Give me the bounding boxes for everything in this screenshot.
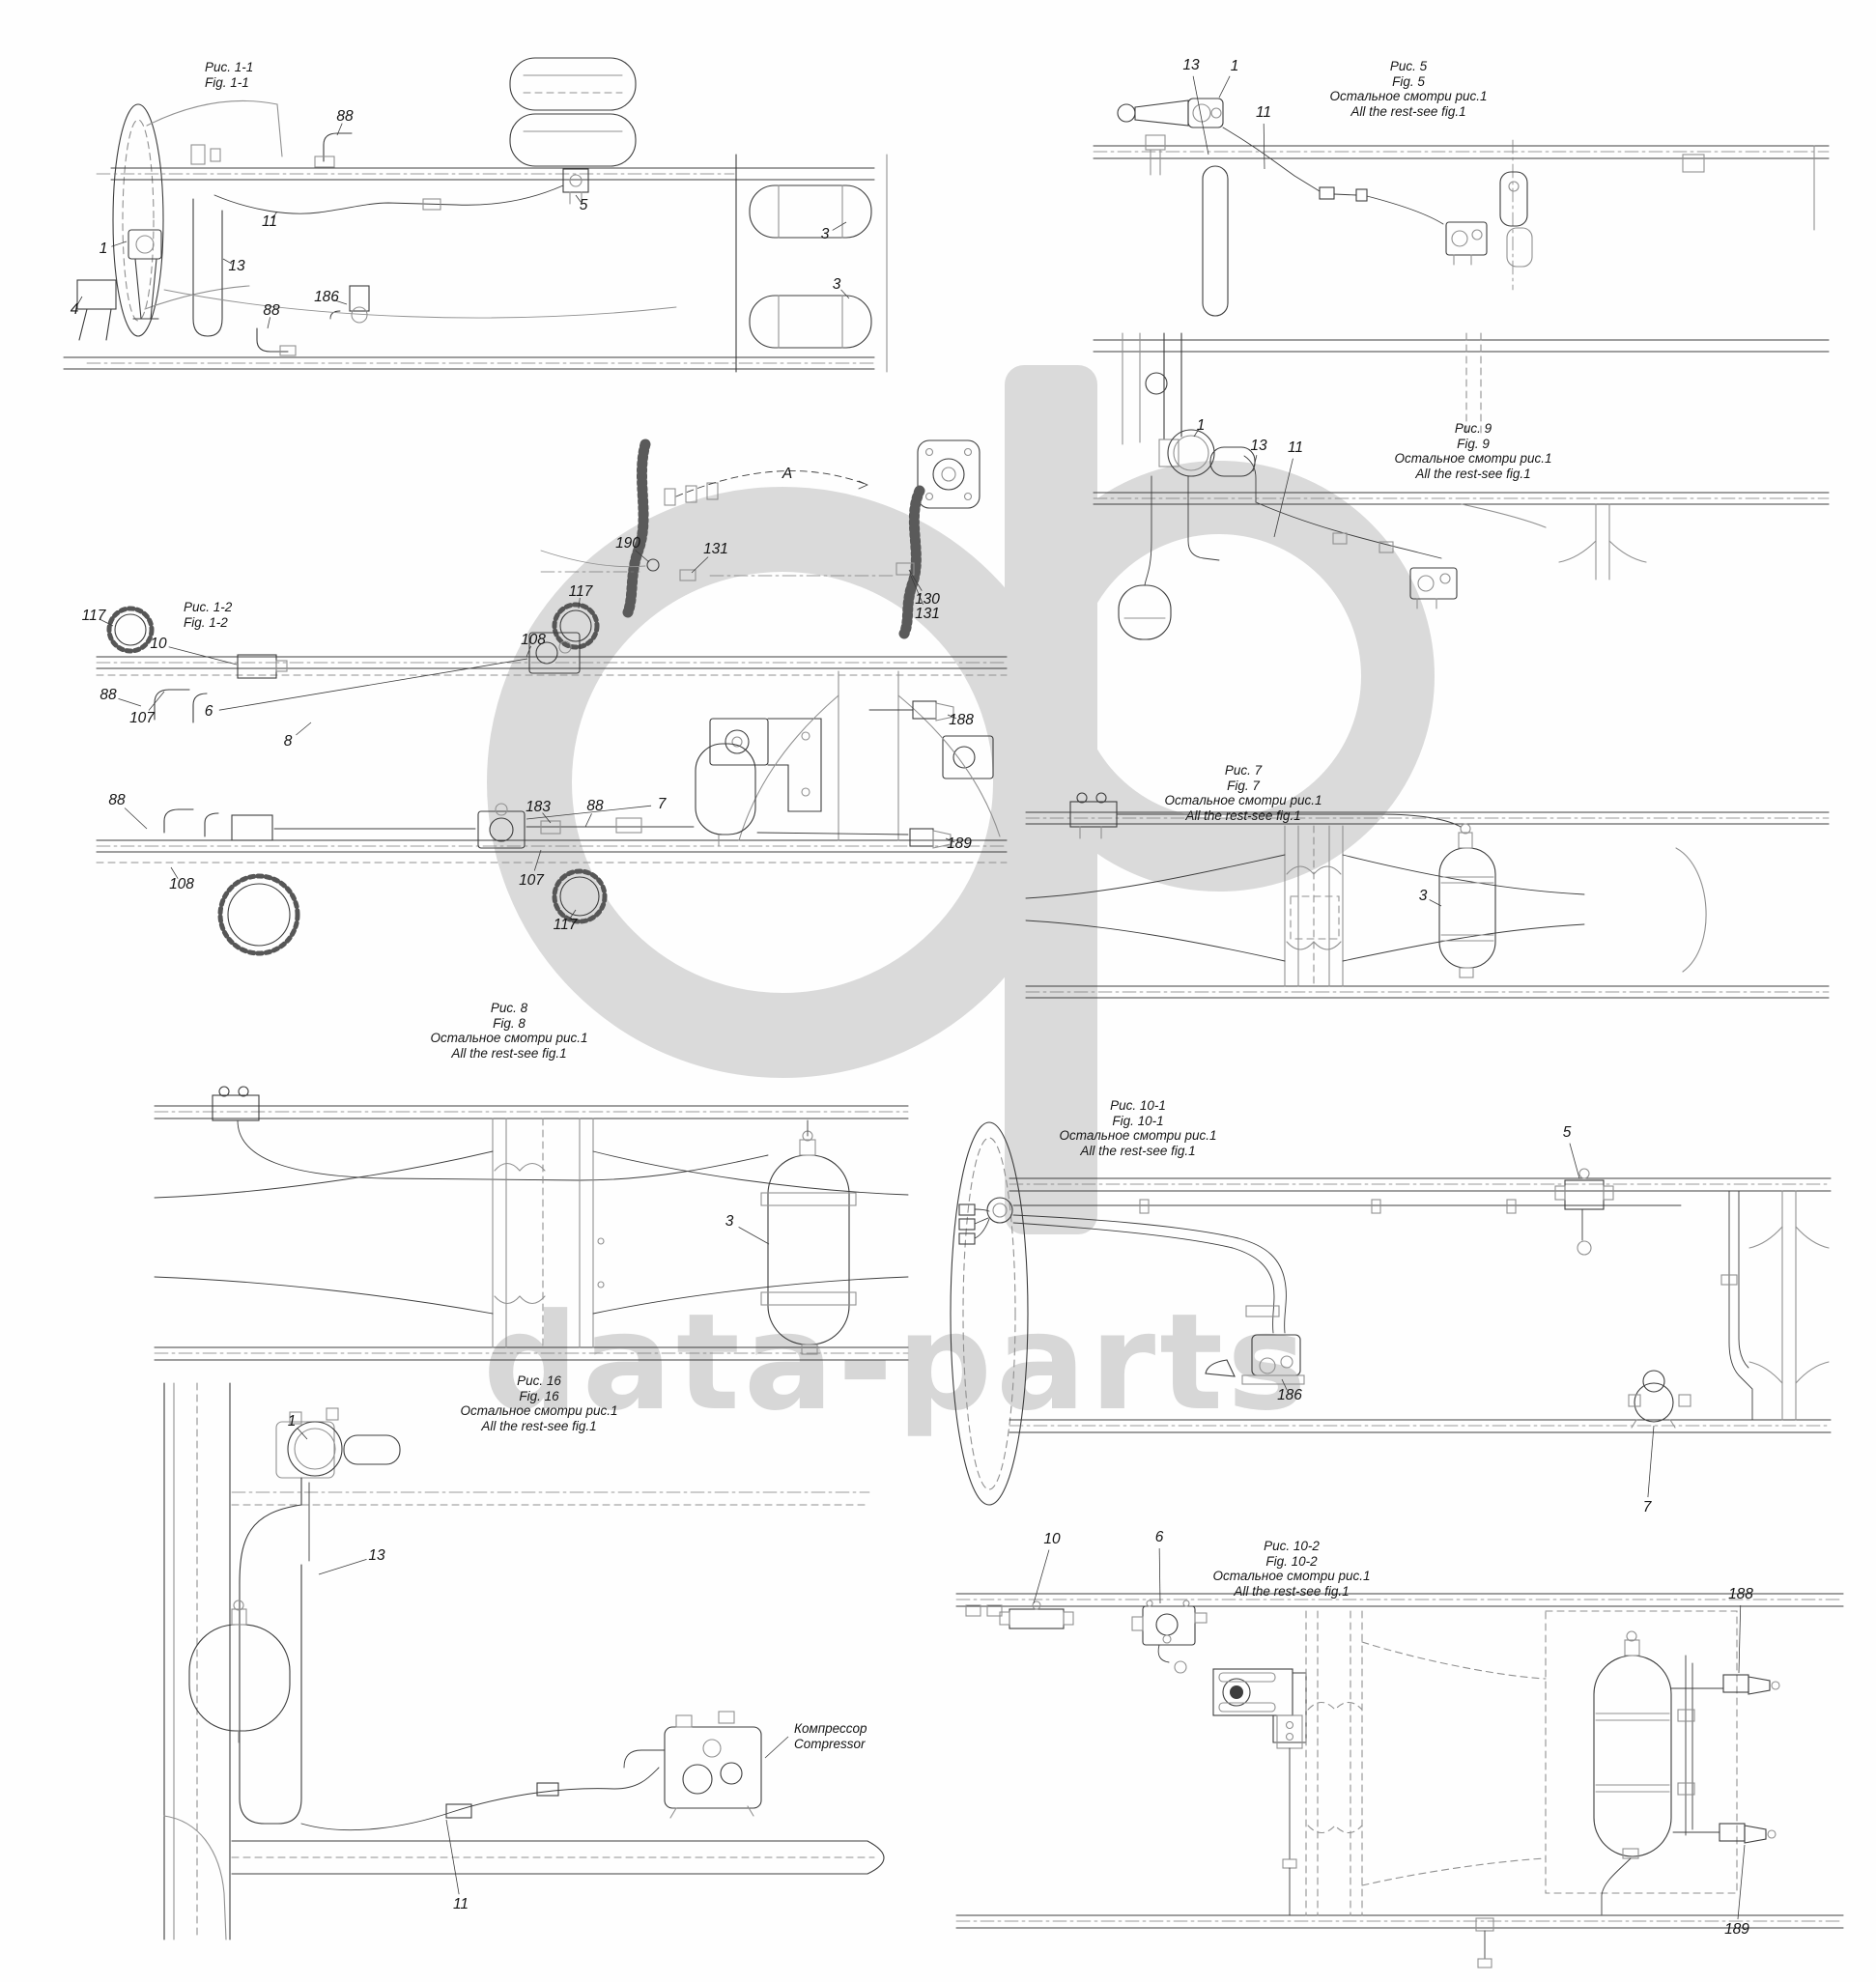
fig-1-2-callout-8: 8: [284, 733, 293, 750]
fig-5-callout-11: 11: [1256, 104, 1271, 122]
fig-1-2-callout-131: 131: [703, 541, 728, 558]
catalog-page: data-parts: [0, 0, 1876, 1982]
fig-1-1-callout-1: 1: [99, 241, 108, 258]
fig-1-2-callout-A: A: [782, 466, 792, 483]
fig-1-2-callout-117: 117: [554, 917, 578, 934]
compressor-label: КомпрессорCompressor: [794, 1721, 867, 1751]
fig-1-1-callout-3: 3: [821, 226, 830, 243]
fig-5-caption: Рис. 5Fig. 5Остальное смотри рис.1All th…: [1329, 59, 1487, 119]
fig-1-2-callout-88: 88: [586, 798, 603, 815]
fig-10-1-callout-5: 5: [1563, 1124, 1572, 1142]
fig-7-caption: Рис. 7Fig. 7Остальное смотри рис.1All th…: [1164, 763, 1322, 823]
fig-1-2-callout-88: 88: [99, 687, 116, 704]
fig-1-2-callout-117: 117: [569, 583, 593, 601]
fig-1-1-callout-186: 186: [314, 289, 339, 306]
fig-1-1-callout-88: 88: [336, 108, 353, 126]
fig-16-callout-13: 13: [368, 1547, 384, 1565]
fig-8-caption: Рис. 8Fig. 8Остальное смотри рис.1All th…: [430, 1001, 587, 1061]
fig-10-2-callout-10: 10: [1043, 1531, 1060, 1548]
fig-9-callout-1: 1: [1197, 417, 1206, 435]
fig-1-2-callout-7: 7: [658, 796, 667, 813]
fig-10-1-callout-186: 186: [1277, 1387, 1302, 1404]
fig-1-1-caption: Рис. 1-1Fig. 1-1: [205, 60, 253, 90]
fig-5-callout-1: 1: [1231, 58, 1239, 75]
fig-16-callout-1: 1: [288, 1413, 297, 1430]
fig-10-1-caption: Рис. 10-1Fig. 10-1Остальное смотри рис.1…: [1059, 1098, 1216, 1158]
fig-10-2-callout-6: 6: [1155, 1529, 1164, 1546]
fig-1-2-callout-88: 88: [108, 792, 125, 809]
fig-1-2-callout-117: 117: [82, 608, 106, 625]
fig-1-1-callout-4: 4: [71, 301, 79, 319]
fig-1-1-callout-5: 5: [580, 197, 588, 214]
fig-1-2-callout-183: 183: [526, 799, 551, 816]
fig-1-1-callout-3: 3: [833, 276, 841, 294]
fig-1-2-callout-188: 188: [949, 712, 974, 729]
fig-1-2-caption: Рис. 1-2Fig. 1-2: [184, 600, 232, 630]
fig-16-callout-11: 11: [453, 1896, 469, 1913]
fig-1-2-callout-10: 10: [150, 636, 166, 653]
fig-1-2-callout-108: 108: [169, 876, 194, 893]
fig-1-2-callout-189: 189: [947, 835, 972, 853]
fig-1-2-callout-190: 190: [615, 535, 640, 552]
fig-10-2-callout-189: 189: [1724, 1921, 1749, 1939]
fig-10-2-callout-188: 188: [1728, 1586, 1753, 1603]
fig-1-2-callout-107: 107: [519, 872, 544, 890]
fig-9-callout-13: 13: [1250, 438, 1266, 455]
fig-1-1-callout-88: 88: [263, 302, 279, 320]
fig-8-callout-3: 3: [725, 1213, 734, 1231]
fig-1-2-callout-108: 108: [521, 632, 546, 649]
fig-16-caption: Рис. 16Fig. 16Остальное смотри рис.1All …: [460, 1373, 617, 1433]
fig-10-1-callout-7: 7: [1643, 1499, 1652, 1516]
fig-9-caption: Рис. 9Fig. 9Остальное смотри рис.1All th…: [1394, 421, 1551, 481]
labels-layer: Рис. 1-1Fig. 1-18851111318633488Рис. 5Fi…: [0, 0, 1876, 1982]
fig-9-callout-11: 11: [1288, 439, 1303, 457]
fig-1-2-callout-107: 107: [129, 710, 155, 727]
fig-1-1-callout-11: 11: [262, 213, 277, 231]
fig-1-1-callout-13: 13: [228, 258, 244, 275]
fig-10-2-caption: Рис. 10-2Fig. 10-2Остальное смотри рис.1…: [1212, 1539, 1370, 1599]
fig-5-callout-13: 13: [1182, 57, 1199, 74]
fig-7-callout-3: 3: [1419, 888, 1428, 905]
fig-1-2-callout-6: 6: [205, 703, 213, 721]
fig-1-2-callout-131: 131: [915, 606, 940, 623]
